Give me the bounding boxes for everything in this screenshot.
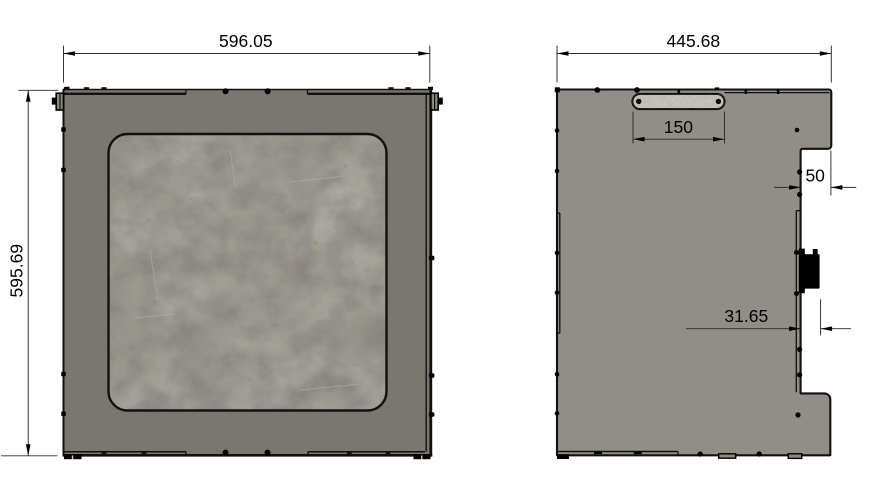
svg-text:596.05: 596.05 [219, 31, 273, 51]
svg-text:31.65: 31.65 [724, 306, 768, 326]
svg-text:50: 50 [805, 166, 825, 186]
svg-text:445.68: 445.68 [667, 31, 721, 51]
svg-text:595.69: 595.69 [7, 244, 27, 298]
svg-text:150: 150 [664, 117, 693, 137]
